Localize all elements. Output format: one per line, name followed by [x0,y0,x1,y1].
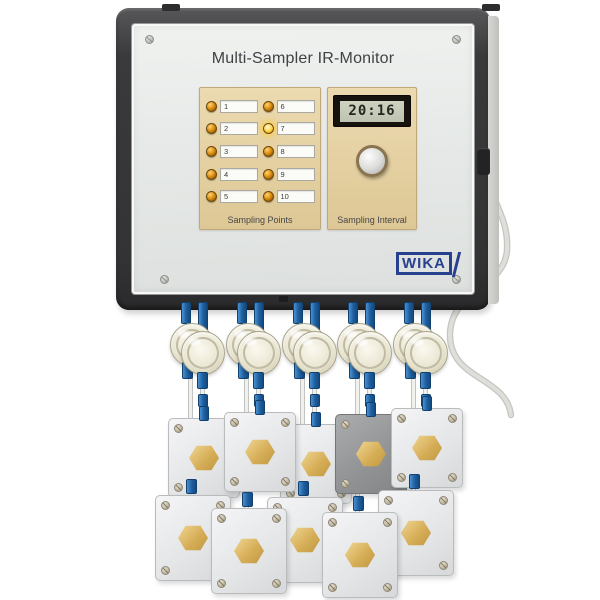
screw [439,561,448,570]
led-indicator [263,191,274,202]
led-indicator [263,101,274,112]
screw [383,583,392,592]
screw [328,583,337,592]
sampling-point-row: 6 [263,95,317,118]
screw [161,501,170,510]
brand-logo-text: WIKA [396,252,452,275]
led-indicator [263,146,274,157]
sample-number: 7 [281,124,285,133]
sample-label-field: 10 [277,190,315,203]
sample-number: 9 [281,170,285,179]
led-indicator [206,191,217,202]
sampling-interval-panel: 20:16 Sampling Interval [327,87,417,230]
panel-screw [145,35,154,44]
sample-label-field: 2 [220,122,258,135]
sampling-interval-caption: Sampling Interval [328,215,416,225]
sample-number: 1 [224,102,228,111]
device-title: Multi-Sampler IR-Monitor [132,50,474,68]
sample-number: 3 [224,147,228,156]
sampling-point-row: 2 [206,118,260,141]
sample-label-field: 5 [220,190,258,203]
sampling-point-row: 1 [206,95,260,118]
screw [174,483,183,492]
interval-display: 20:16 [333,95,411,127]
sensor-box [224,412,296,492]
screw [217,514,226,523]
brand-logo: WIKA [396,252,458,277]
screw [230,477,239,486]
sample-number: 6 [281,102,285,111]
sample-number: 5 [224,192,228,201]
sample-label-field: 8 [277,145,315,158]
hose-fitting [422,396,432,411]
interval-display-value: 20:16 [340,101,404,122]
hex-plug [245,439,275,465]
screw [328,518,337,527]
sensor-box [211,508,287,594]
cable-gland [477,148,490,175]
hex-plug [356,441,386,467]
screw [383,518,392,527]
brand-logo-slash [452,252,461,277]
hose-fitting [311,412,321,427]
screw [161,566,170,575]
sampling-points-caption: Sampling Points [200,215,320,225]
sample-label-field: 3 [220,145,258,158]
screw [448,414,457,423]
screw [439,496,448,505]
hex-plug [189,445,219,471]
sampling-point-row: 5 [206,185,260,208]
screw [217,579,226,588]
screw [448,473,457,482]
hex-plug [290,527,320,553]
screw [281,477,290,486]
panel-screw [160,275,169,284]
sampling-points-grid: 1 6 2 7 3 [206,95,316,208]
hose-fitting [255,400,265,415]
hose-fitting [199,406,209,421]
panel-screw [452,35,461,44]
hex-plug [412,435,442,461]
screw [397,414,406,423]
screw [230,418,239,427]
led-indicator [263,123,274,134]
screw [328,503,337,512]
led-indicator [206,101,217,112]
sensor-box [322,512,398,598]
hex-plug [401,520,431,546]
sampling-point-row: 3 [206,140,260,163]
sampling-point-row: 8 [263,140,317,163]
hex-plug [178,525,208,551]
hex-plug [345,542,375,568]
sampling-point-row: 4 [206,163,260,186]
sample-label-field: 9 [277,168,315,181]
screw [397,473,406,482]
sample-label-field: 1 [220,100,258,113]
sample-number: 2 [224,124,228,133]
screw [272,514,281,523]
screw [272,579,281,588]
hinge [482,4,500,11]
hex-plug [234,538,264,564]
sampling-point-row: 9 [263,163,317,186]
screw [341,420,350,429]
front-panel: Multi-Sampler IR-Monitor 1 6 [131,23,475,295]
led-indicator [206,169,217,180]
monitor-enclosure: Multi-Sampler IR-Monitor 1 6 [116,8,490,310]
sensor-box [391,408,463,488]
led-indicator [206,146,217,157]
screw [174,424,183,433]
sample-label-field: 7 [277,122,315,135]
sampling-points-panel: 1 6 2 7 3 [199,87,321,230]
sampling-point-row: 10 [263,185,317,208]
door-latch [279,296,288,302]
sample-number: 4 [224,170,228,179]
screw [281,418,290,427]
screw [384,496,393,505]
led-indicator [263,169,274,180]
led-indicator [206,123,217,134]
sample-number: 8 [281,147,285,156]
sample-label-field: 6 [277,100,315,113]
interval-knob[interactable] [356,145,388,177]
hinge [162,4,180,11]
hose-fitting [366,402,376,417]
product-photo: Multi-Sampler IR-Monitor 1 6 [0,0,600,600]
sample-label-field: 4 [220,168,258,181]
sample-number: 10 [281,192,289,201]
hex-plug [301,451,331,477]
screw [341,479,350,488]
sampling-point-row: 7 [263,118,317,141]
